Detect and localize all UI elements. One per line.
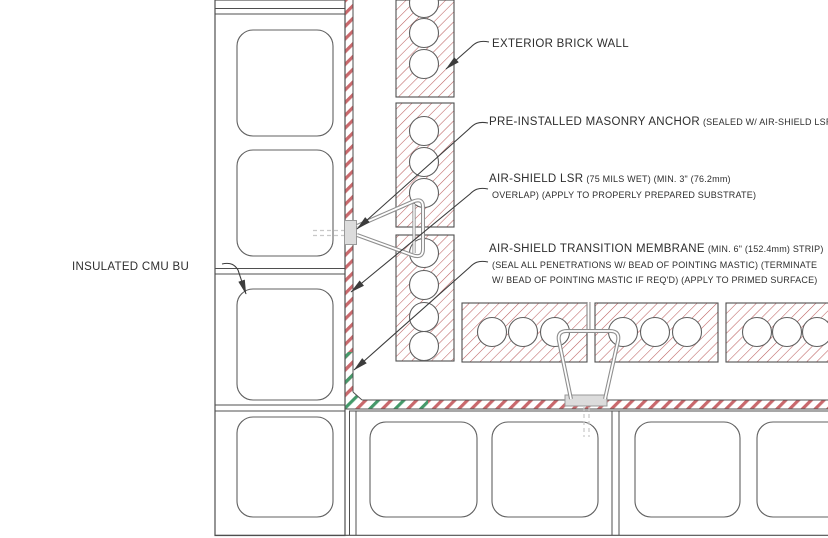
wall-section-detail-drawing: EXTERIOR BRICK WALL PRE-INSTALLED MASONR… [0,0,828,538]
air-shield-lsr-text: AIR-SHIELD LSR [489,173,583,185]
label-exterior-brick-wall: EXTERIOR BRICK WALL [492,36,629,52]
label-insulated-cmu: INSULATED CMU BU [72,259,189,275]
masonry-anchor-text: PRE-INSTALLED MASONRY ANCHOR [489,116,700,128]
brick-veneer-horizontal [462,303,828,362]
cmu-cell [757,422,828,517]
cmu-cell [492,422,598,517]
transition-membrane-note2: (SEAL ALL PENETRATIONS W/ BEAD OF POINTI… [492,260,817,270]
membrane-corner [345,392,362,400]
label-air-shield-lsr: AIR-SHIELD LSR(75 MILS WET) (MIN. 3" (76… [489,171,756,202]
air-shield-lsr-note2: OVERLAP) (APPLY TO PROPERLY PREPARED SUB… [492,190,756,200]
air-shield-lsr-note1: (75 MILS WET) (MIN. 3" (76.2mm) [586,174,730,184]
transition-membrane-note3: W/ BEAD OF POINTING MASTIC IF REQ'D) (AP… [492,275,818,285]
masonry-anchor-note: (SEALED W/ AIR-SHIELD LSR) [703,117,828,127]
transition-overlap-horizontal [345,400,428,409]
anchor-plate [345,221,357,245]
cmu-backup-wall [215,0,345,536]
transition-overlap-vertical [345,352,353,392]
insulated-cmu-text: INSULATED CMU BU [72,261,189,273]
transition-membrane-text: AIR-SHIELD TRANSITION MEMBRANE [489,243,705,255]
cmu-cell [370,422,477,517]
label-transition-membrane: AIR-SHIELD TRANSITION MEMBRANE(MIN. 6" (… [489,241,824,288]
transition-membrane-note1: (MIN. 6" (152.4mm) STRIP) [708,244,824,254]
exterior-brick-wall-text: EXTERIOR BRICK WALL [492,38,629,50]
lsr-vertical-strip [345,0,353,392]
label-masonry-anchor: PRE-INSTALLED MASONRY ANCHOR(SEALED W/ A… [489,114,828,130]
cmu-cell [635,422,740,517]
lsr-horizontal-strip [428,400,828,409]
